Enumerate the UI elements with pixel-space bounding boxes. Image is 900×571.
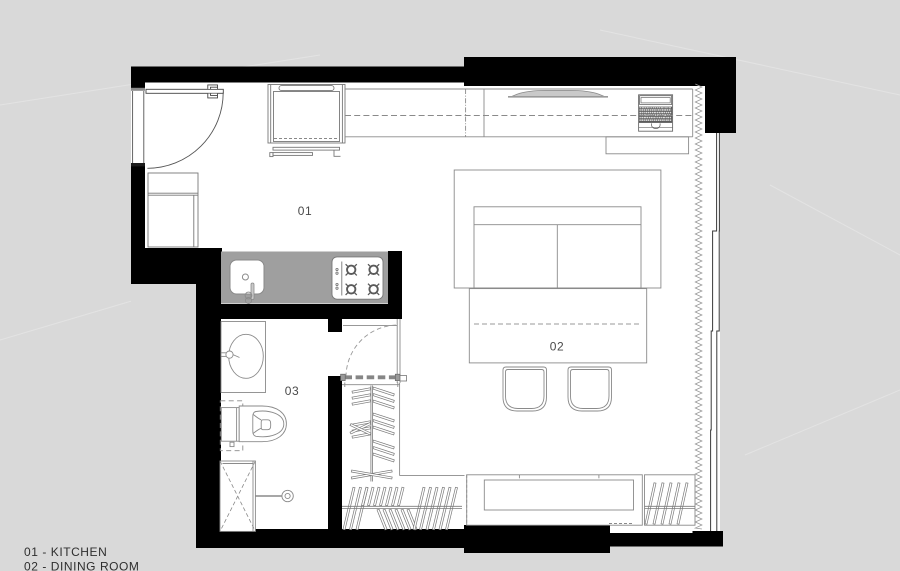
svg-text:01 - KITCHEN: 01 - KITCHEN [24, 545, 107, 559]
svg-text:01: 01 [298, 204, 313, 218]
svg-text:02 - DINING ROOM: 02 - DINING ROOM [24, 560, 139, 571]
svg-text:03: 03 [285, 384, 300, 398]
svg-text:02: 02 [550, 340, 565, 354]
